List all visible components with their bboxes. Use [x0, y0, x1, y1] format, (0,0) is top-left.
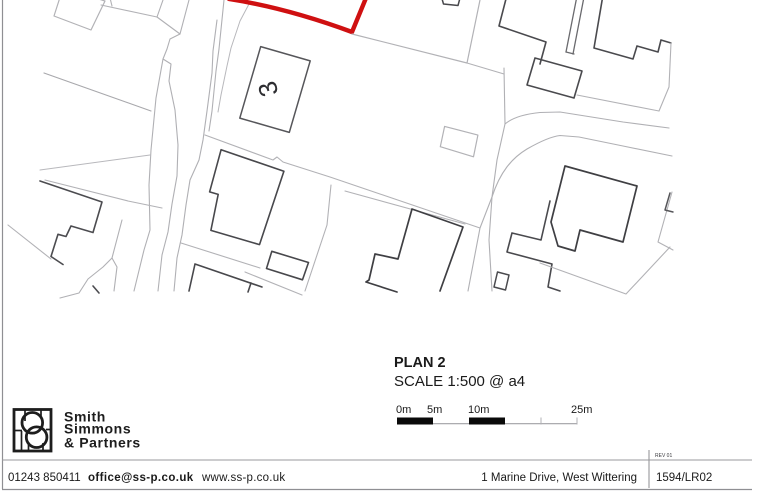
svg-text:REV 01: REV 01 [655, 453, 672, 459]
svg-text:PLAN 2: PLAN 2 [394, 355, 446, 371]
svg-text:& Partners: & Partners [64, 435, 141, 451]
svg-text:0m: 0m [396, 404, 411, 416]
svg-text:SCALE 1:500 @ a4: SCALE 1:500 @ a4 [394, 373, 525, 390]
svg-text:1 Marine Drive, West Wittering: 1 Marine Drive, West Wittering [481, 472, 637, 484]
svg-text:01243 850411: 01243 850411 [8, 472, 81, 484]
svg-text:5m: 5m [427, 404, 442, 416]
svg-text:1594/LR02: 1594/LR02 [656, 472, 712, 484]
svg-text:office@ss-p.co.uk: office@ss-p.co.uk [88, 472, 194, 484]
svg-text:www.ss-p.co.uk: www.ss-p.co.uk [201, 472, 285, 484]
svg-text:25m: 25m [571, 404, 592, 416]
svg-text:10m: 10m [468, 404, 489, 416]
